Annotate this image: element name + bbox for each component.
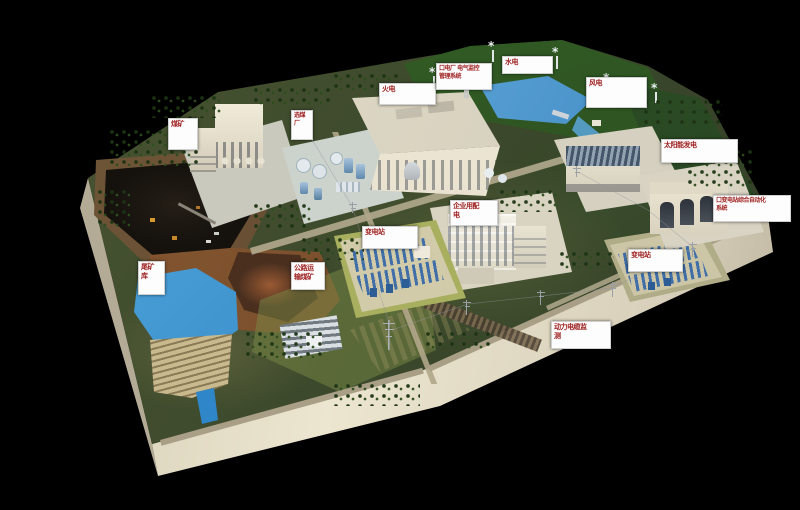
tree-cluster bbox=[96, 188, 130, 230]
tree-cluster bbox=[300, 236, 364, 260]
pylon bbox=[608, 282, 618, 297]
label-hydro-power: 水电 bbox=[502, 56, 553, 74]
tree-cluster bbox=[244, 330, 322, 358]
tree-cluster bbox=[642, 98, 722, 128]
tree-cluster bbox=[498, 188, 558, 212]
sand-table-model-photo: * * * * * 煤矿 选煤厂 火电 口电厂 电气监控 管理系统 水电 风电 … bbox=[0, 0, 800, 510]
tree-cluster bbox=[252, 202, 312, 228]
label-tailings-pond: 尾矿 库 bbox=[138, 261, 165, 295]
label-solar-power: 太阳能发电 bbox=[661, 139, 738, 163]
tree-cluster bbox=[252, 86, 332, 108]
pylon bbox=[536, 290, 546, 305]
label-substation-automation: 口变电站综合自动化 系统 bbox=[713, 195, 791, 222]
wind-turbine: * bbox=[492, 50, 494, 62]
pylon bbox=[572, 166, 582, 177]
tree-cluster bbox=[424, 330, 490, 352]
label-substation-center: 变电站 bbox=[362, 226, 418, 249]
tree-cluster bbox=[558, 250, 614, 270]
pylon bbox=[382, 320, 396, 350]
label-plant-electrical-monitoring: 口电厂 电气监控 管理系统 bbox=[436, 63, 492, 90]
pylon bbox=[348, 202, 358, 213]
label-thermal-power: 火电 bbox=[379, 83, 436, 105]
tree-cluster bbox=[332, 382, 420, 406]
wind-turbine: * bbox=[556, 56, 558, 69]
pylon bbox=[688, 242, 698, 257]
label-power-cable-monitoring: 动力电缆监 测 bbox=[551, 321, 611, 349]
label-coal-washery: 选煤厂 bbox=[291, 110, 313, 140]
label-substation-right: 变电站 bbox=[628, 249, 683, 272]
turbine-rotor-icon: * bbox=[651, 83, 657, 93]
pylon bbox=[462, 300, 472, 315]
turbine-rotor-icon: * bbox=[429, 67, 435, 77]
label-coal-mine: 煤矿 bbox=[168, 118, 198, 150]
label-enterprise-distribution: 企业用配 电 bbox=[450, 200, 498, 226]
label-wind-power: 风电 bbox=[586, 77, 647, 108]
label-coal-road-transport: 公路运 输煤矿 bbox=[291, 262, 325, 290]
turbine-rotor-icon: * bbox=[488, 41, 494, 51]
tree-cluster bbox=[150, 94, 222, 118]
